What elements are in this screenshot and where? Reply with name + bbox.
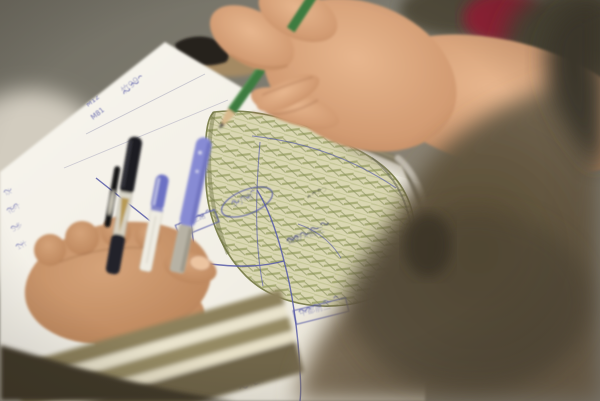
vignette-overlay — [0, 0, 600, 401]
photograph: 防竹仪 竹99 M12 M81 以 花叶 — [0, 0, 600, 401]
